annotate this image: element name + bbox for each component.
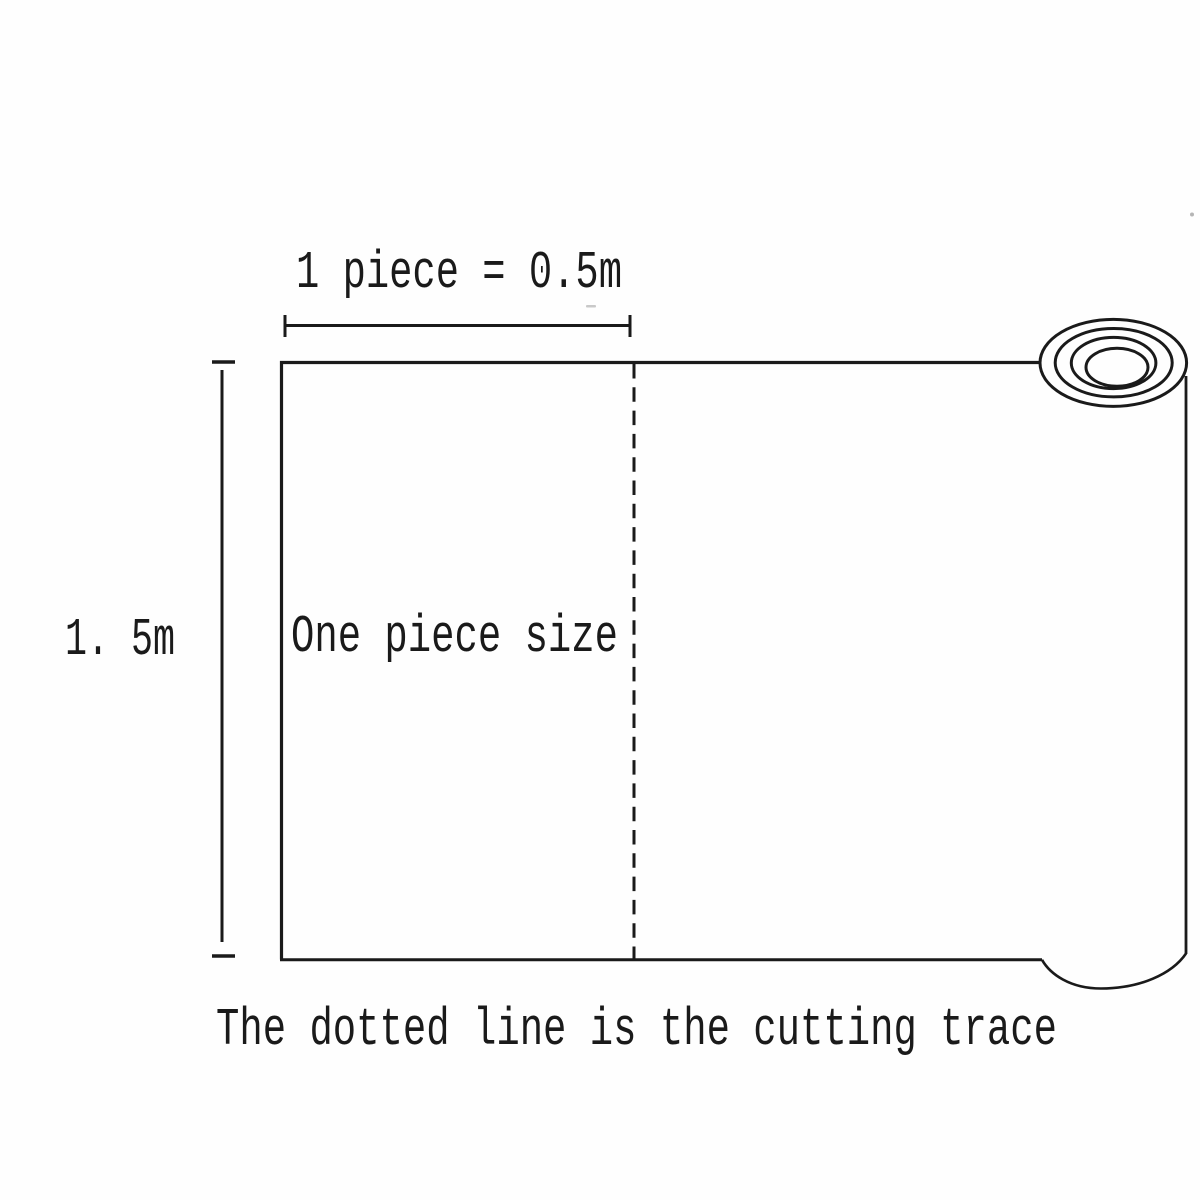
svg-text:One piece size: One piece size — [291, 607, 618, 667]
svg-text:1. 5m: 1. 5m — [65, 610, 175, 670]
svg-text:1 piece = 0.5m: 1 piece = 0.5m — [296, 243, 622, 303]
svg-text:The dotted line is the cutting: The dotted line is the cutting trace — [216, 1000, 1057, 1060]
